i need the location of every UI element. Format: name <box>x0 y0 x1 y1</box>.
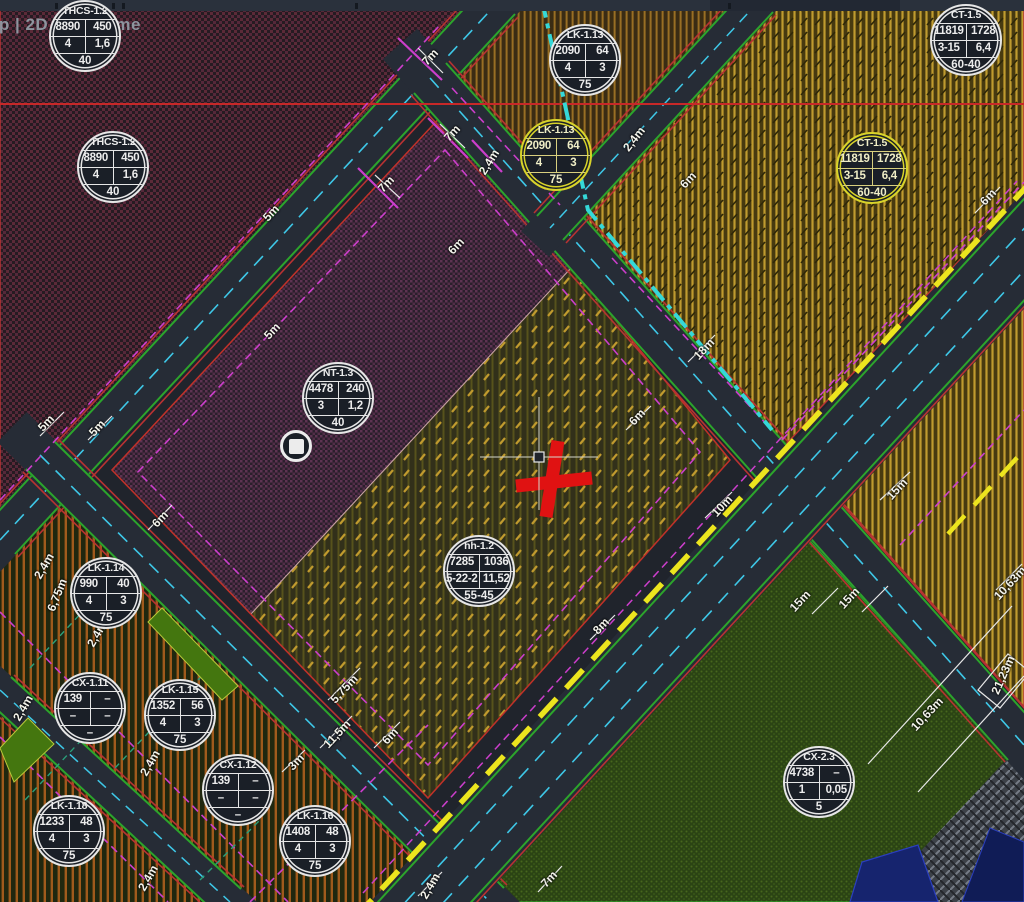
balloon-row: 43 <box>35 831 103 848</box>
balloon-row: 3-156,4 <box>838 168 906 185</box>
balloon-cell: 7285 <box>445 555 479 571</box>
parcel-balloon-THCS-1.2[interactable]: THCS-1.2889045041,640 <box>49 0 121 72</box>
balloon-row: 72851036 <box>445 554 513 571</box>
balloon-cell: 1,2 <box>338 399 373 415</box>
parcel-balloon-LK-1.18[interactable]: LK-1.181233484375 <box>33 795 105 867</box>
balloon-row: 43 <box>146 715 214 732</box>
balloon-row: 10,05 <box>785 782 853 799</box>
balloon-cell: 4 <box>522 156 556 172</box>
balloon-row: 43 <box>281 841 349 858</box>
balloon-cell: 4 <box>72 594 106 610</box>
balloon-cell: 4 <box>551 61 585 77</box>
topbar-tick <box>55 3 58 9</box>
parcel-balloon-CX-1.12[interactable]: CX-1.12139–––– <box>202 754 274 826</box>
balloon-cell: 1728 <box>872 152 907 168</box>
balloon-cell: 3 <box>180 716 215 732</box>
balloon-cell: – <box>90 709 125 725</box>
balloon-row: 99040 <box>72 576 140 593</box>
balloon-cell: 6,4 <box>872 169 907 185</box>
balloon-row: 118191728 <box>838 151 906 168</box>
balloon-cell: 4 <box>79 168 113 184</box>
balloon-cell: 2090 <box>522 139 556 155</box>
balloon-cell: 8890 <box>79 151 113 167</box>
topbar-tick <box>112 3 115 9</box>
balloon-cell: 3 <box>585 61 620 77</box>
balloon-row: 43 <box>522 155 590 172</box>
balloon-cell: 4 <box>146 716 180 732</box>
balloon-cell: 6,4 <box>966 41 1001 57</box>
balloon-cell: 3 <box>304 399 338 415</box>
balloon-cell: 11819 <box>932 24 966 40</box>
parcel-balloon-CX-1.11[interactable]: CX-1.11139–––– <box>54 672 126 744</box>
block-symbol[interactable] <box>280 430 312 462</box>
balloon-row: 4738– <box>785 765 853 782</box>
balloon-cell: 3 <box>106 594 141 610</box>
balloon-cell: 56 <box>180 699 215 715</box>
balloon-cell: 4738 <box>785 766 819 782</box>
balloon-cell: 3 <box>315 842 350 858</box>
balloon-cell: 3 <box>556 156 591 172</box>
balloon-cell: 11819 <box>838 152 872 168</box>
balloon-row: 3-156,4 <box>932 40 1000 57</box>
parcel-balloon-LK-1.16[interactable]: LK-1.161408484375 <box>279 805 351 877</box>
balloon-row: 135256 <box>146 698 214 715</box>
balloon-cell: – <box>238 791 273 807</box>
block-symbol-square <box>289 439 304 454</box>
balloon-cell: 4 <box>281 842 315 858</box>
balloon-row: 41,6 <box>79 167 147 184</box>
balloon-cell: 48 <box>69 815 104 831</box>
balloon-cell: 1728 <box>966 24 1001 40</box>
balloon-cell: 450 <box>113 151 148 167</box>
app-topbar <box>0 0 1024 11</box>
balloon-row: 139– <box>56 691 124 708</box>
balloon-row: 209064 <box>522 138 590 155</box>
parcel-balloon-THCS-1.2[interactable]: THCS-1.2889045041,640 <box>77 131 149 203</box>
parcel-balloon-NT-1.3[interactable]: NT-1.3447824031,240 <box>302 362 374 434</box>
balloon-row: –– <box>204 790 272 807</box>
balloon-cell: 1036 <box>479 555 514 571</box>
balloon-row: 123348 <box>35 814 103 831</box>
cad-viewport[interactable]: op | 2D Wireframe THCS-1.2889045041,640T… <box>0 0 1024 902</box>
balloon-cell: 1233 <box>35 815 69 831</box>
balloon-cell: 48 <box>315 825 350 841</box>
balloon-cell: 5-22-2 <box>445 572 479 588</box>
balloon-cell: 1408 <box>281 825 315 841</box>
balloon-cell: 1 <box>785 783 819 799</box>
balloon-cell: 64 <box>585 44 620 60</box>
topbar-tick <box>728 3 731 9</box>
balloon-cell: 4 <box>51 37 85 53</box>
balloon-cell: 3 <box>69 832 104 848</box>
balloon-row: 43 <box>72 593 140 610</box>
parcel-balloon-LK-1.13[interactable]: LK-1.132090644375 <box>520 119 592 191</box>
balloon-cell: – <box>56 709 90 725</box>
balloon-cell: 4478 <box>304 382 338 398</box>
balloon-cell: 4 <box>35 832 69 848</box>
balloon-cell: 2090 <box>551 44 585 60</box>
balloon-cell: 8890 <box>51 20 85 36</box>
balloon-cell: 139 <box>204 774 238 790</box>
balloon-row: 5-22-211,52 <box>445 571 513 588</box>
balloon-cell: 139 <box>56 692 90 708</box>
parcel-balloon-LK-1.13[interactable]: LK-1.132090644375 <box>549 24 621 96</box>
balloon-row: 139– <box>204 773 272 790</box>
balloon-row: 118191728 <box>932 23 1000 40</box>
parcel-balloon-LK-1.15[interactable]: LK-1.151352564375 <box>144 679 216 751</box>
balloon-row: 209064 <box>551 43 619 60</box>
balloon-cell: – <box>819 766 854 782</box>
balloon-row: 41,6 <box>51 36 119 53</box>
balloon-cell: – <box>204 791 238 807</box>
parcel-balloon-LK-1.14[interactable]: LK-1.14990404375 <box>70 557 142 629</box>
balloon-cell: 1352 <box>146 699 180 715</box>
balloon-cell: 40 <box>106 577 141 593</box>
parcel-balloon-CX-2.3[interactable]: CX-2.34738–10,055 <box>783 746 855 818</box>
parcel-balloon-hh-1.2[interactable]: hh-1.2728510365-22-211,5255-45 <box>443 535 515 607</box>
topbar-panel <box>710 0 900 11</box>
balloon-cell: 240 <box>338 382 373 398</box>
balloon-row: –– <box>56 708 124 725</box>
balloon-row: 43 <box>551 60 619 77</box>
topbar-tick <box>355 3 358 9</box>
balloon-cell: 450 <box>85 20 120 36</box>
balloon-cell: 1,6 <box>113 168 148 184</box>
balloon-cell: 1,6 <box>85 37 120 53</box>
topbar-tick <box>122 3 125 9</box>
balloon-cell: 990 <box>72 577 106 593</box>
balloon-cell: 3-15 <box>838 169 872 185</box>
parcel-balloon-CT-1.5[interactable]: CT-1.51181917283-156,460-40 <box>930 4 1002 76</box>
balloon-row: 140848 <box>281 824 349 841</box>
balloon-row: 8890450 <box>51 19 119 36</box>
balloon-cell: 11,52 <box>479 572 514 588</box>
pickbox <box>534 452 544 462</box>
balloon-row: 4478240 <box>304 381 372 398</box>
parcel-balloon-CT-1.5[interactable]: CT-1.51181917283-156,460-40 <box>836 132 908 204</box>
balloon-cell: 64 <box>556 139 591 155</box>
balloon-cell: 3-15 <box>932 41 966 57</box>
balloon-row: 31,2 <box>304 398 372 415</box>
balloon-cell: – <box>90 692 125 708</box>
balloon-row: 8890450 <box>79 150 147 167</box>
balloon-cell: 0,05 <box>819 783 854 799</box>
balloon-cell: – <box>238 774 273 790</box>
